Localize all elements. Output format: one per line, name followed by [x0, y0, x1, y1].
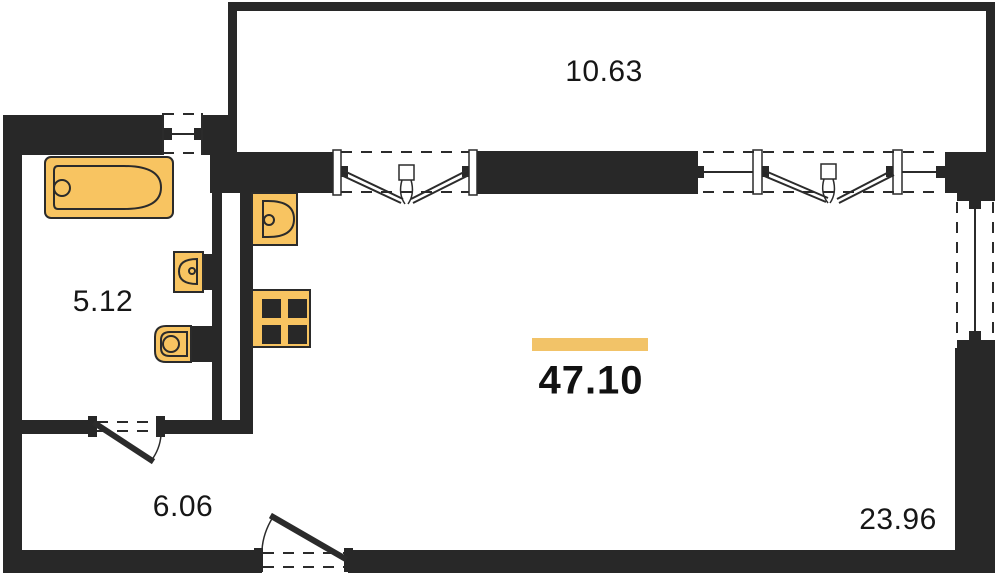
- room-area-label: 23.96: [859, 503, 937, 537]
- bath-door-jamb-right: [156, 416, 165, 437]
- right-window-bottom-tab: [969, 331, 981, 340]
- wall-bottom-left: [3, 550, 262, 573]
- balcony-area-label: 10.63: [565, 55, 643, 89]
- wall-niche: [22, 157, 33, 180]
- bath-door-arc: [151, 435, 161, 461]
- hallway-area-label: 6.06: [153, 490, 213, 524]
- wall-bathroom-right: [212, 190, 222, 433]
- window2-stop-right: [936, 166, 946, 178]
- window1-jamb-left: [333, 150, 341, 195]
- window2-handle: [821, 164, 836, 179]
- wall-left-outer: [3, 115, 22, 573]
- right-window-top-cap: [957, 193, 995, 201]
- window1-handle: [399, 165, 414, 180]
- right-window-top-tab: [969, 201, 981, 209]
- wall-hall-top-right: [157, 420, 253, 434]
- window1-jamb-right: [469, 150, 477, 195]
- window2-sash-left: [763, 170, 828, 198]
- wall-right-upper-block: [945, 152, 995, 193]
- total-area-accent-bar: [532, 338, 648, 351]
- total-area-label: 47.10: [538, 359, 643, 404]
- stove-burner-4: [288, 325, 307, 344]
- wall-balcony-right: [986, 2, 995, 155]
- window1-sash-right-b: [413, 175, 469, 203]
- window2-mullion-right: [893, 150, 902, 194]
- window2-sash-left-b: [762, 175, 826, 202]
- window2-sash-right: [837, 170, 893, 199]
- wall-window-band-b: [477, 151, 698, 194]
- window1-sash-right: [411, 170, 468, 199]
- floor-plan: 10.63 5.12 6.06 23.96 47.10: [0, 0, 1000, 575]
- wall-bottom-right: [348, 550, 995, 573]
- entry-door-arc: [262, 517, 273, 550]
- window2-stop-left: [694, 166, 704, 178]
- walls: [3, 2, 995, 573]
- wall-right-lower: [955, 348, 995, 558]
- toilet-cistern: [191, 326, 212, 362]
- wall-vent-pier: [203, 115, 233, 155]
- entry-door-leaf: [273, 517, 344, 558]
- stove-burner-1: [262, 299, 281, 318]
- wall-hall-top-left: [22, 420, 90, 434]
- right-window-bottom-cap: [957, 340, 995, 348]
- wall-balcony-top: [228, 2, 995, 11]
- vent-window-stop-left: [163, 128, 172, 140]
- stove-burner-3: [262, 325, 281, 344]
- door-leaves: [96, 424, 344, 558]
- window2-mullion-left: [753, 150, 762, 194]
- stove-burner-2: [288, 299, 307, 318]
- wall-window-band-a: [210, 152, 333, 193]
- wall-bathroom-top: [3, 115, 162, 155]
- bathroom-area-label: 5.12: [73, 285, 133, 319]
- window1-sash-left: [342, 170, 403, 199]
- window1-sash-left-b: [341, 175, 401, 203]
- window2-sash-right-b: [839, 175, 894, 203]
- floor-plan-drawing: [0, 0, 1000, 575]
- bath-door-leaf: [96, 424, 151, 460]
- entry-door-jamb-left: [254, 548, 263, 572]
